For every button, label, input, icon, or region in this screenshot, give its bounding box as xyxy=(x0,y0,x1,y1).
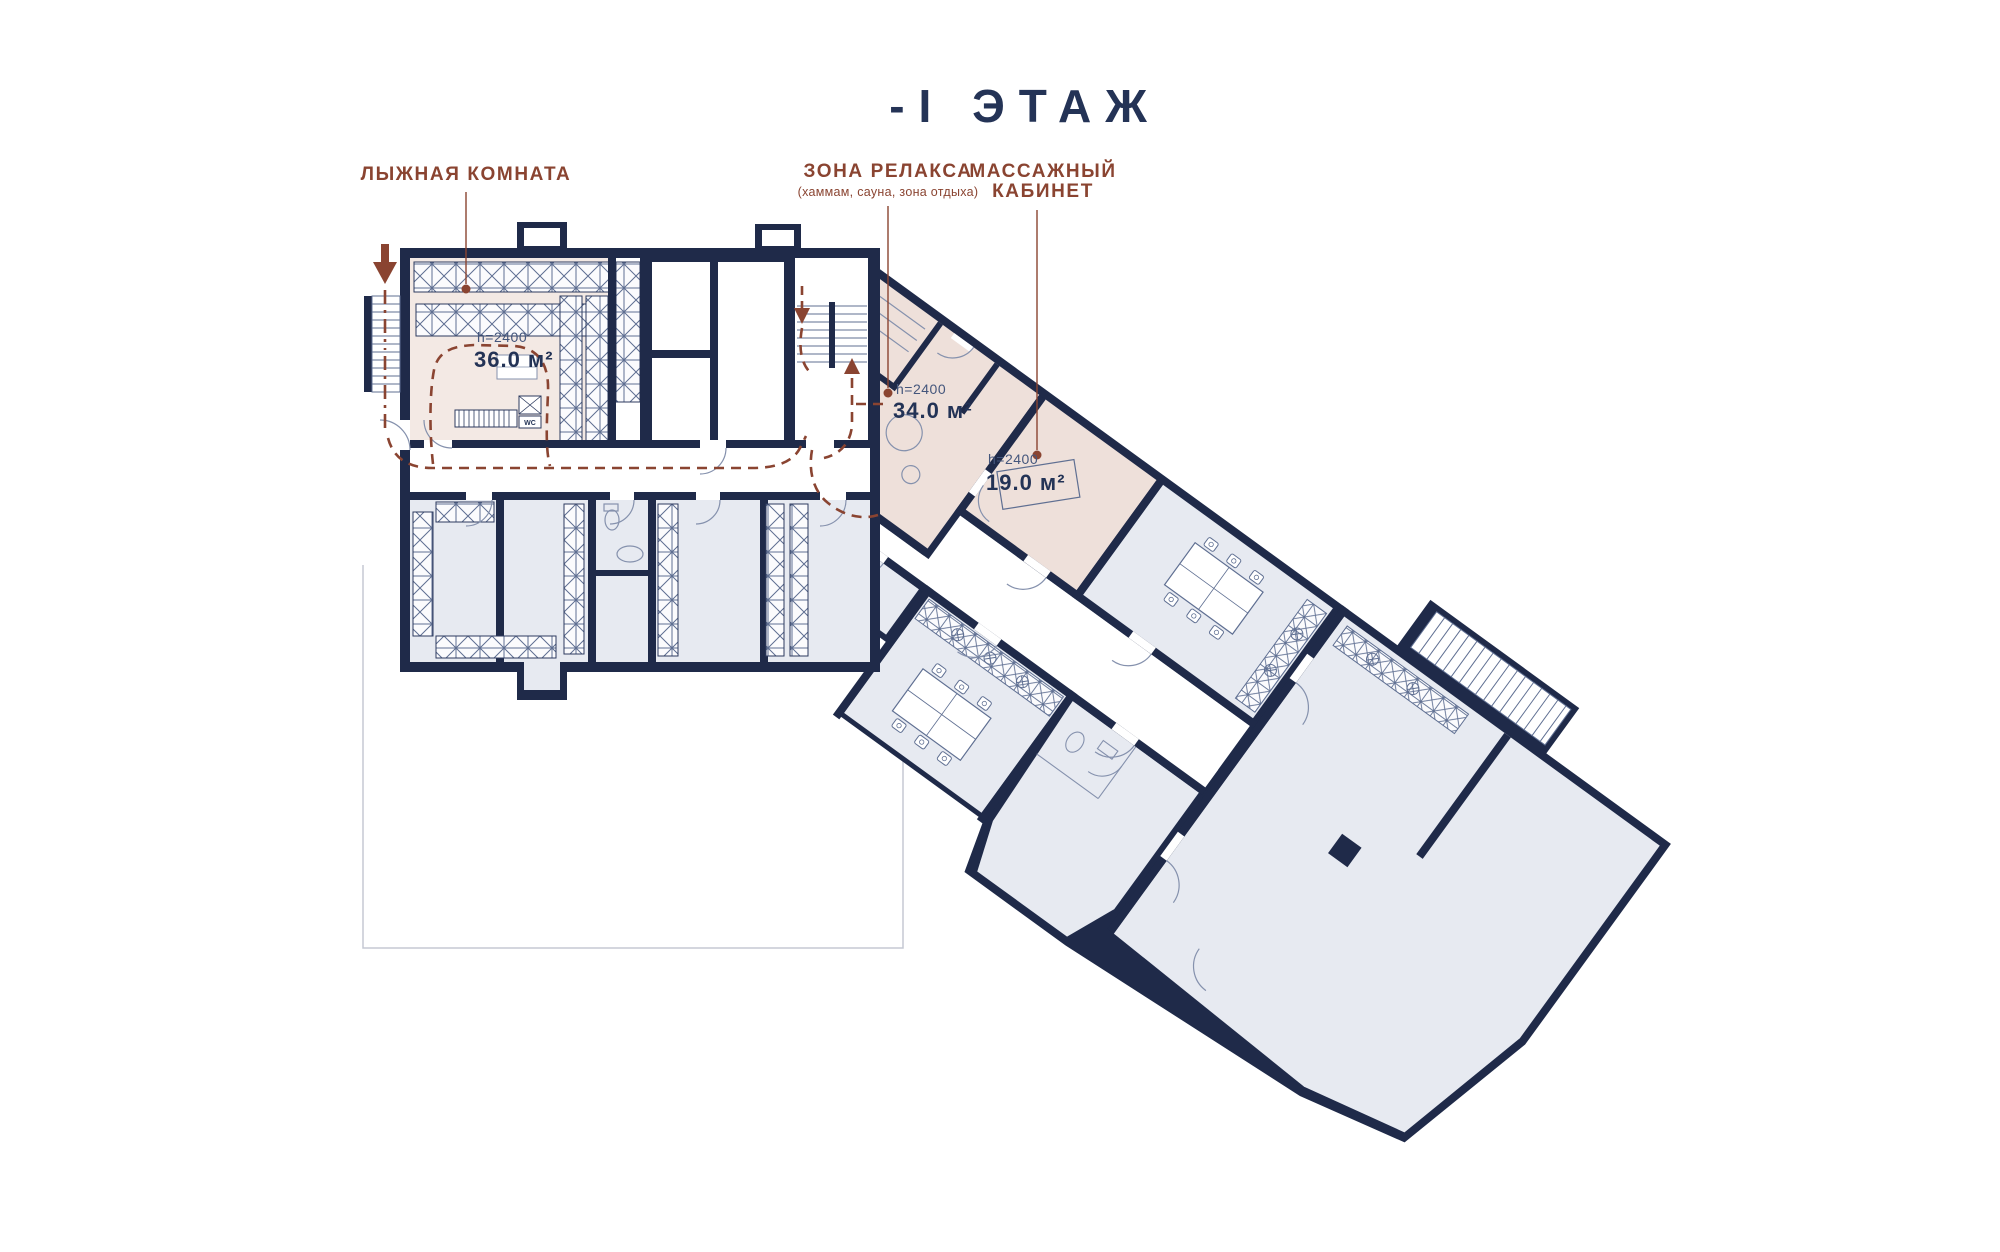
ski-ceiling-note: h=2400 xyxy=(477,329,527,345)
top-notch-1-inner xyxy=(524,228,560,246)
left-corridor xyxy=(410,448,870,492)
junction-stairs-divider xyxy=(829,302,835,368)
rack-f xyxy=(766,504,784,656)
floor-plan-page: WC xyxy=(0,0,2000,1252)
elevator-shaft-1 xyxy=(652,262,710,350)
rack-a xyxy=(413,512,433,636)
ski-rack-1 xyxy=(414,262,610,292)
ski-room-label: ЛЫЖНАЯ КОМНАТА xyxy=(361,164,572,185)
entry-stairs-rail xyxy=(364,296,372,392)
relax-zone-label: ЗОНА РЕЛАКСА xyxy=(803,161,972,182)
bottom-notch-inner xyxy=(524,662,560,690)
rack-c xyxy=(436,502,494,522)
rack-d xyxy=(564,504,584,654)
ski-rack-3 xyxy=(560,296,582,446)
relax-zone-sublabel: (хаммам, сауна, зона отдыха) xyxy=(798,185,979,199)
ski-leader-dot xyxy=(462,285,471,294)
ski-rack-5 xyxy=(616,262,640,402)
floor-plan-drawing: WC xyxy=(0,0,2000,1252)
ski-rack-4 xyxy=(586,296,608,446)
massage-room-label-2: КАБИНЕТ xyxy=(992,181,1094,202)
rack-e xyxy=(658,504,678,656)
massage-ceiling-note: h=2400 xyxy=(988,451,1038,467)
ski-area: 36.0 м² xyxy=(474,347,554,372)
page-title: -I ЭТАЖ xyxy=(889,80,1161,132)
massage-room-label-1: МАССАЖНЫЙ xyxy=(969,160,1116,182)
wc-box-label: WC xyxy=(524,420,536,427)
top-notch-2-inner xyxy=(762,230,794,246)
massage-area: 19.0 м² xyxy=(986,470,1066,495)
entry-arrow-icon xyxy=(373,244,397,284)
relax-leader-dot xyxy=(884,389,893,398)
elevator-shaft-2 xyxy=(652,358,710,443)
rack-b xyxy=(436,636,556,658)
relax-area: 34.0 м² xyxy=(893,398,973,423)
relax-ceiling-note: h=2400 xyxy=(896,381,946,397)
storage-room-3 xyxy=(596,576,648,662)
elevator-shaft-3 xyxy=(718,262,784,443)
rack-g xyxy=(790,504,808,656)
